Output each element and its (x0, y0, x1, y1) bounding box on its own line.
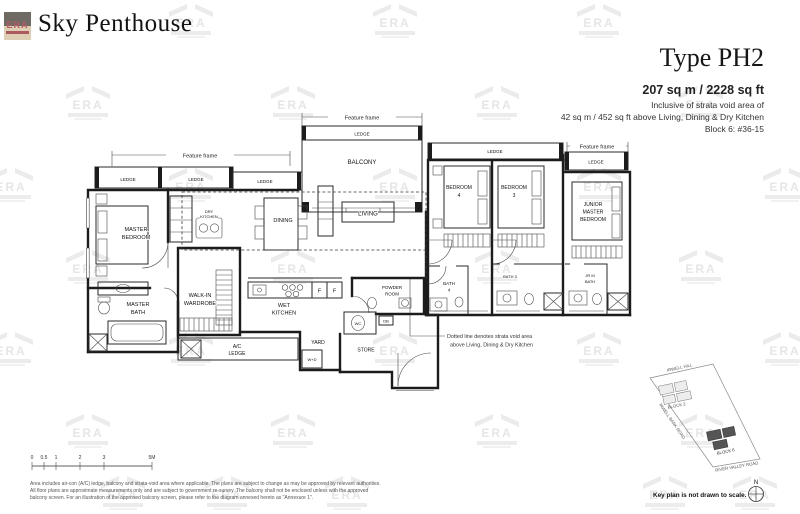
master-bath-label: BATH (131, 310, 145, 316)
left-ledge: LEDGE LEDGE LEDGE Feature frame (95, 150, 302, 190)
powder-room-label: ROOM (385, 292, 399, 297)
yard-label: YARD (311, 340, 325, 346)
unit-area: 207 sq m / 2228 sq ft (561, 83, 764, 97)
floorplan-page: ERAERAERAERAERAERAERAERAERAERAERAERAERAE… (0, 0, 800, 514)
bath3-label: BATH 3 (503, 274, 517, 279)
junior-master-bedroom: JUNIOR MASTER BEDROOM JR M BATH (565, 182, 628, 315)
dry-kitchen-label: KITCHEN (200, 214, 218, 219)
era-logo-text: ERA (4, 20, 31, 30)
ac-ledge-label: LEDGE (229, 351, 247, 357)
dry-kitchen: DRY KITCHEN (170, 196, 222, 242)
fridge-label: F (333, 289, 337, 295)
compass-north-label: N (754, 480, 758, 486)
page-title: Sky Penthouse (38, 10, 192, 38)
bedroom3-label: BEDROOM (501, 185, 527, 191)
unit-block-number: Block 6: #36-15 (561, 124, 764, 134)
balcony-label: BALCONY (348, 160, 377, 166)
ledge-label: LEDGE (354, 132, 369, 137)
bedroom3-label: 3 (513, 193, 516, 199)
junior-master-bath-label: JR M (585, 273, 594, 278)
wet-kitchen: WET KITCHEN F F (248, 278, 342, 317)
walk-in-wardrobe-label: WARDROBE (184, 301, 217, 307)
ledge-label: LEDGE (257, 179, 272, 184)
ac-ledge-label: A/C (233, 344, 242, 350)
walk-in-wardrobe-label: WALK-IN (189, 293, 212, 299)
bedroom4-label: BEDROOM (446, 185, 472, 191)
era-logo-bar (6, 31, 29, 34)
ledge-label: LEDGE (188, 177, 203, 182)
bedroom-3: BEDROOM 3 BATH 3 (492, 166, 563, 310)
fridge-label: F (318, 289, 322, 295)
unit-info: Type PH2 207 sq m / 2228 sq ft Inclusive… (561, 44, 764, 134)
wet-kitchen-label: KITCHEN (272, 311, 296, 317)
dining-label: DINING (273, 218, 292, 224)
feature-frame-label: Feature frame (580, 145, 615, 151)
service-areas: A/C LEDGE YARD W+D STORE (178, 315, 438, 391)
bedroom-4: BEDROOM 4 BATH 4 (428, 166, 490, 315)
ledge-label: LEDGE (588, 160, 603, 165)
void-note-line2: above Living, Dining & Dry Kitchen (450, 343, 533, 349)
scale-tick-label: 2 (79, 455, 82, 461)
unit-inclusive-2: 42 sq m / 452 sq ft above Living, Dining… (561, 112, 764, 122)
disclaimer-line3: balcony screen. For an illustration of t… (30, 495, 430, 502)
disclaimer-text: Area includes air-con (A/C) ledge, balco… (30, 481, 430, 502)
powder-room: POWDER ROOM (352, 278, 424, 314)
unit-type: Type PH2 (561, 44, 764, 72)
washer-dryer-label: W+D (308, 357, 317, 362)
bath4-label: 4 (448, 288, 451, 293)
store-label: STORE (357, 348, 375, 354)
junior-master-label: BEDROOM (580, 217, 606, 223)
scale-tick-label: 1 (55, 455, 58, 461)
wc-room: WC DB (344, 312, 393, 334)
living-label: LIVING (358, 212, 378, 218)
void-note-line1: Dotted line denotes strata void area (447, 334, 532, 340)
junior-master-label: MASTER (583, 210, 604, 216)
scale-bar: 0 0.5 1 2 3 5M (31, 455, 156, 470)
powder-room-label: POWDER (382, 285, 403, 290)
bedroom4-label: 4 (458, 193, 461, 199)
feature-frame-label: Feature frame (183, 154, 218, 160)
key-plan: IRWELL HILL IRWELL BANK ROAD RIVER VALLE… (650, 362, 764, 501)
ledge-label: LEDGE (487, 149, 502, 154)
void-note: Dotted line denotes strata void area abo… (447, 334, 533, 349)
disclaimer-line1: Area includes air-con (A/C) ledge, balco… (30, 481, 430, 488)
road-label-river-valley: RIVER VALLEY ROAD (715, 460, 759, 473)
unit-inclusive-1: Inclusive of strata void area of (561, 100, 764, 110)
master-bath-label: MASTER (127, 302, 150, 308)
scale-tick-label: 5M (149, 455, 156, 461)
balcony-room: Feature frame LEDGE BALCONY (302, 112, 422, 212)
junior-master-label: JUNIOR (584, 202, 603, 208)
scale-tick-label: 0.5 (41, 455, 48, 461)
master-bedroom-label: MASTER (125, 227, 148, 233)
scale-tick-label: 0 (31, 455, 34, 461)
bath4-label: BATH (443, 281, 455, 286)
wc-label: WC (355, 321, 362, 326)
feature-frame-label: Feature frame (345, 116, 380, 122)
db-label: DB (383, 319, 389, 324)
disclaimer-line2: All floor plans are approximate measurem… (30, 488, 430, 495)
junior-master-bath-label: BATH (585, 279, 595, 284)
key-plan-caption: Key plan is not drawn to scale. (653, 492, 747, 499)
era-logo: ERA (4, 12, 31, 40)
ledge-label: LEDGE (120, 177, 135, 182)
scale-tick-label: 3 (103, 455, 106, 461)
master-bedroom-label: BEDROOM (122, 235, 151, 241)
dining-room: DINING (255, 198, 307, 250)
wet-kitchen-label: WET (278, 303, 291, 309)
